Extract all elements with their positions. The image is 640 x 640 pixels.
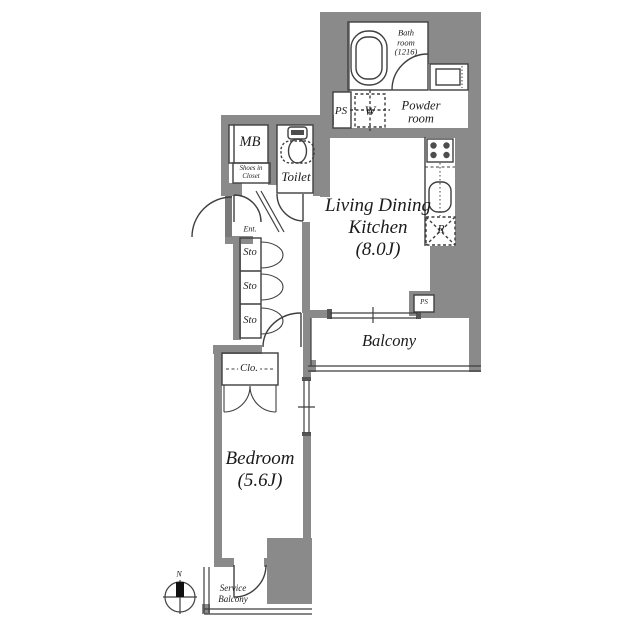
storage-label: Sto bbox=[243, 281, 256, 293]
closet-door-arcs bbox=[224, 385, 276, 412]
closet-label: Clo. bbox=[238, 363, 260, 375]
compass-north-label: N bbox=[176, 571, 181, 580]
entrance-door-arc bbox=[192, 196, 232, 237]
storage-label: Sto bbox=[243, 315, 256, 327]
ldk-door-arc bbox=[277, 194, 303, 221]
storage-label: Sto bbox=[243, 247, 256, 259]
bedroom-door-arc bbox=[263, 313, 301, 347]
storage-door-arcs bbox=[261, 242, 283, 334]
washer-label: W bbox=[365, 104, 376, 118]
washbasin-icon bbox=[430, 64, 468, 90]
ldk-label: Living Dining Kitchen (8.0J) bbox=[325, 195, 431, 261]
pipe-space-upper-label: PS bbox=[335, 105, 347, 117]
fridge-label: R bbox=[437, 224, 444, 237]
entrance-label: Ent. bbox=[243, 226, 256, 235]
floor-plan: Bath room (1216) PS W Powder room MB Sho… bbox=[0, 0, 640, 640]
entrance-step-line bbox=[256, 191, 284, 232]
balcony-label: Balcony bbox=[362, 332, 416, 350]
bathroom-door-arc bbox=[392, 54, 428, 90]
toilet-label: Toilet bbox=[281, 170, 310, 184]
powder-room-label: Powder room bbox=[402, 100, 441, 125]
bathroom-label: Bath room (1216) bbox=[395, 29, 418, 58]
pipe-space-lower-label: PS bbox=[420, 299, 428, 307]
stove-icon bbox=[427, 139, 453, 162]
bedroom-label: Bedroom (5.6J) bbox=[226, 448, 295, 492]
bathtub-icon bbox=[351, 31, 387, 85]
bedroom-window-icon bbox=[298, 377, 315, 436]
plan-linework bbox=[0, 0, 640, 640]
toilet-door-arc bbox=[234, 195, 261, 222]
service-balcony-label: Service Balcony bbox=[218, 583, 248, 606]
toilet-icon bbox=[281, 127, 314, 163]
shoes-closet-label: Shoes in Closet bbox=[240, 165, 263, 181]
ldk-balcony-window-icon bbox=[327, 307, 421, 323]
compass-icon bbox=[163, 580, 197, 614]
meter-box-label: MB bbox=[240, 135, 261, 151]
